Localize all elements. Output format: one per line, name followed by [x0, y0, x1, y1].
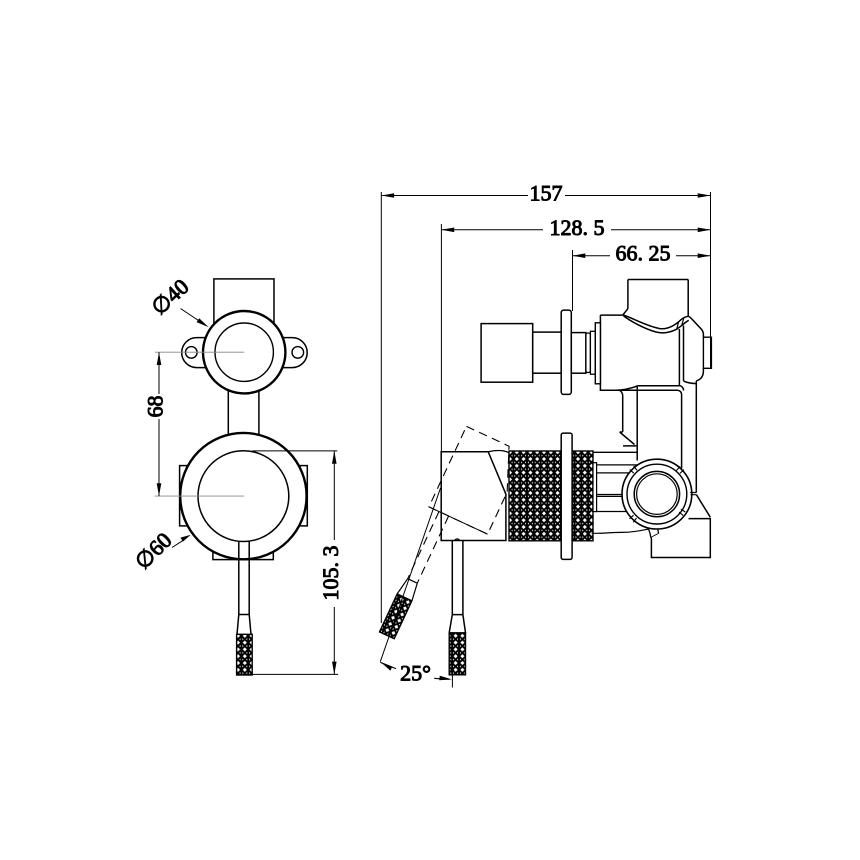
- svg-text:25°: 25°: [400, 661, 431, 686]
- svg-text:128. 5: 128. 5: [550, 215, 605, 240]
- svg-text:157: 157: [530, 181, 563, 206]
- svg-text:66. 25: 66. 25: [616, 241, 671, 266]
- svg-text:68: 68: [143, 396, 168, 418]
- svg-text:105. 3: 105. 3: [318, 546, 343, 601]
